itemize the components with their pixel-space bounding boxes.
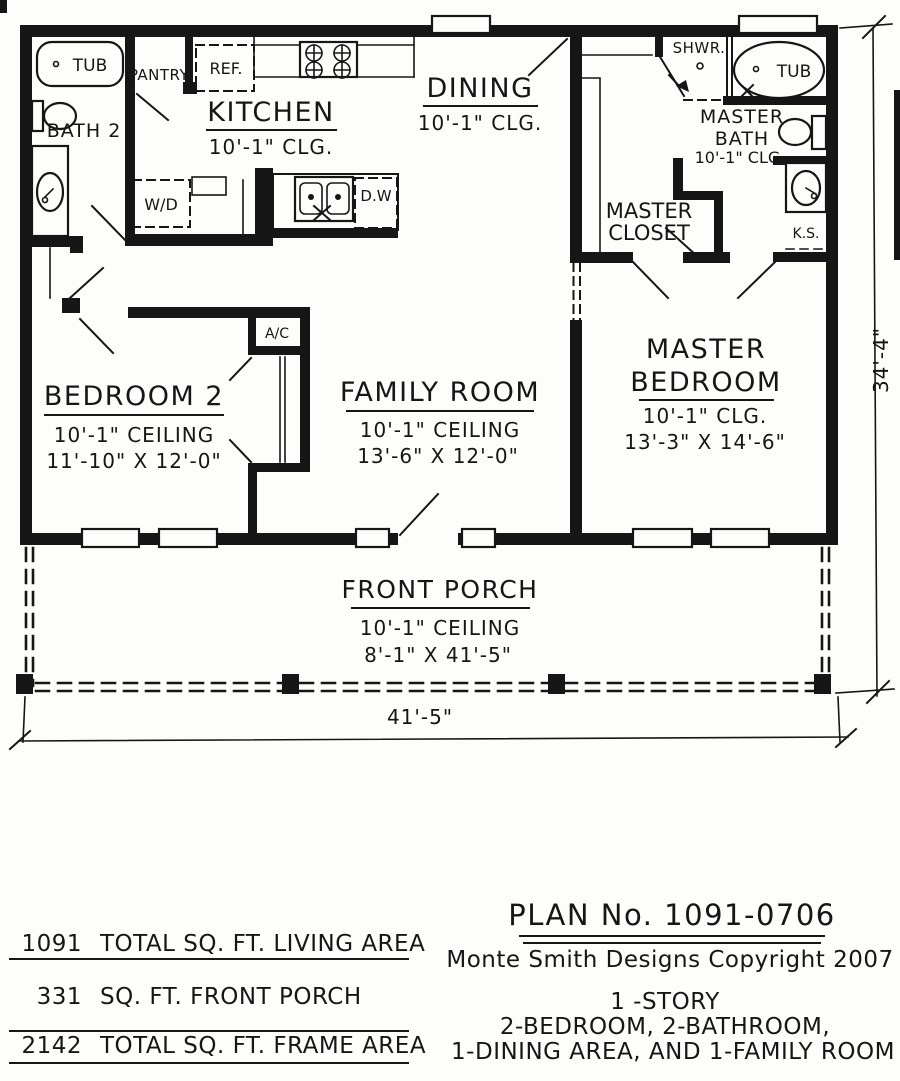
floor-plan-page: TUB BATH 2 PANTRY REF. bbox=[0, 0, 900, 1081]
dimension-depth: 34'-4" bbox=[836, 16, 894, 703]
window-master-bath bbox=[739, 16, 817, 33]
shower-label: SHWR. bbox=[673, 39, 726, 57]
svg-text:BATH: BATH bbox=[715, 128, 769, 150]
wall-top bbox=[20, 25, 838, 37]
dishwasher-icon: D.W bbox=[355, 178, 397, 228]
svg-text:BEDROOM: BEDROOM bbox=[630, 367, 781, 398]
master-sink-icon bbox=[786, 163, 826, 212]
porch-post bbox=[814, 674, 831, 694]
opening-dining bbox=[529, 39, 567, 75]
stat-value: 2142 bbox=[21, 1033, 82, 1059]
svg-text:FAMILY ROOM: FAMILY ROOM bbox=[340, 377, 540, 408]
svg-text:10'-1" CLG.: 10'-1" CLG. bbox=[643, 404, 767, 428]
family-room-label: FAMILY ROOM 10'-1" CEILING 13'-6" X 12'-… bbox=[340, 377, 540, 468]
svg-text:BEDROOM 2: BEDROOM 2 bbox=[44, 381, 224, 412]
svg-text:11'-10" X 12'-0": 11'-10" X 12'-0" bbox=[46, 449, 221, 473]
sqft-table: 1091 TOTAL SQ. FT. LIVING AREA 331 SQ. F… bbox=[10, 931, 426, 1063]
shower-drain-icon bbox=[697, 63, 703, 69]
master-closet-label: MASTER CLOSET bbox=[606, 199, 693, 245]
dishwasher-label: D.W bbox=[360, 187, 391, 205]
dining-label: DINING 10'-1" CLG. bbox=[418, 73, 542, 135]
sink-icon bbox=[32, 146, 68, 236]
front-door-opening bbox=[398, 531, 458, 547]
pantry-label: PANTRY bbox=[129, 66, 190, 84]
svg-text:FRONT PORCH: FRONT PORCH bbox=[342, 575, 539, 604]
ac-label: A/C bbox=[265, 326, 289, 342]
door-master-bath bbox=[738, 262, 775, 298]
svg-text:MASTER: MASTER bbox=[700, 106, 784, 128]
stat-label: TOTAL SQ. FT. LIVING AREA bbox=[99, 931, 425, 957]
porch-post bbox=[16, 674, 33, 694]
window-bedroom2-left bbox=[82, 529, 139, 547]
svg-text:10'-1" CLG.: 10'-1" CLG. bbox=[695, 148, 786, 167]
window-master-bedroom-right bbox=[711, 529, 769, 547]
window-dining bbox=[432, 16, 490, 33]
title-block: PLAN No. 1091-0706 Monte Smith Designs C… bbox=[446, 898, 895, 1065]
door-front bbox=[400, 494, 438, 535]
stat-value: 331 bbox=[37, 984, 82, 1010]
bath2-fixtures: TUB BATH 2 bbox=[32, 42, 123, 236]
svg-text:10'-1" CLG.: 10'-1" CLG. bbox=[418, 111, 542, 135]
door-bedroom2 bbox=[80, 319, 113, 353]
stat-value: 1091 bbox=[21, 931, 82, 957]
porch-post bbox=[282, 674, 299, 694]
overall-depth-label: 34'-4" bbox=[869, 327, 893, 393]
door-bath2 bbox=[92, 206, 125, 240]
svg-text:8'-1" X 41'-5": 8'-1" X 41'-5" bbox=[364, 643, 512, 667]
svg-text:MASTER: MASTER bbox=[606, 199, 693, 223]
plan-description-line: 1-DINING AREA, AND 1-FAMILY ROOM bbox=[451, 1039, 895, 1065]
master-toilet-icon bbox=[779, 116, 826, 149]
door-hall bbox=[70, 268, 103, 298]
washer-dryer-icon: W/D bbox=[133, 177, 257, 236]
master-tub-label: TUB bbox=[776, 62, 812, 82]
kitchen-sink-icon bbox=[295, 177, 353, 221]
master-bath-label: MASTER BATH 10'-1" CLG. bbox=[695, 106, 786, 167]
plan-description-line: 1 -STORY bbox=[610, 989, 720, 1015]
dimension-width: 41'-5" bbox=[10, 697, 856, 749]
svg-text:13'-3" X 14'-6": 13'-3" X 14'-6" bbox=[624, 430, 786, 454]
wall-left bbox=[20, 25, 32, 545]
svg-text:10'-1" CEILING: 10'-1" CEILING bbox=[360, 418, 520, 442]
plan-number: PLAN No. 1091-0706 bbox=[508, 898, 836, 932]
bath2-tub-label: TUB bbox=[72, 56, 108, 76]
svg-text:DINING: DINING bbox=[426, 73, 533, 104]
master-bedroom-label: MASTER BEDROOM 10'-1" CLG. 13'-3" X 14'-… bbox=[624, 334, 786, 454]
svg-text:13'-6" X 12'-0": 13'-6" X 12'-0" bbox=[357, 444, 519, 468]
door-master-closet bbox=[633, 262, 668, 298]
copyright: Monte Smith Designs Copyright 2007 bbox=[446, 947, 893, 973]
stat-label: TOTAL SQ. FT. FRAME AREA bbox=[99, 1033, 426, 1059]
bath2-label: BATH 2 bbox=[47, 120, 122, 142]
window-bedroom2-right bbox=[159, 529, 217, 547]
fridge-label: REF. bbox=[210, 59, 243, 78]
porch-post bbox=[548, 674, 565, 694]
door-pantry bbox=[137, 94, 168, 120]
front-porch-label: FRONT PORCH 10'-1" CEILING 8'-1" X 41'-5… bbox=[342, 575, 539, 667]
plan-description-line: 2-BEDROOM, 2-BATHROOM, bbox=[500, 1014, 830, 1040]
knee-space-label: K.S. bbox=[793, 226, 820, 242]
stove-icon bbox=[300, 42, 357, 78]
closet-shelf bbox=[582, 78, 600, 252]
kitchen-label: KITCHEN 10'-1" CLG. bbox=[207, 97, 336, 159]
bedroom2-label: BEDROOM 2 10'-1" CEILING 11'-10" X 12'-0… bbox=[44, 381, 224, 473]
svg-text:CLOSET: CLOSET bbox=[608, 221, 690, 245]
svg-text:10'-1" CEILING: 10'-1" CEILING bbox=[54, 423, 214, 447]
window-family-left bbox=[356, 529, 389, 547]
window-master-bedroom-left bbox=[633, 529, 692, 547]
wall-right bbox=[826, 25, 838, 545]
stat-label: SQ. FT. FRONT PORCH bbox=[100, 984, 362, 1010]
window-family-right bbox=[462, 529, 495, 547]
floorplan-svg: TUB BATH 2 PANTRY REF. bbox=[0, 0, 900, 1081]
washer-dryer-label: W/D bbox=[144, 195, 178, 214]
svg-text:10'-1" CLG.: 10'-1" CLG. bbox=[209, 135, 333, 159]
svg-text:MASTER: MASTER bbox=[646, 334, 766, 365]
svg-text:10'-1" CEILING: 10'-1" CEILING bbox=[360, 616, 520, 640]
overall-width-label: 41'-5" bbox=[387, 705, 453, 729]
svg-text:KITCHEN: KITCHEN bbox=[207, 97, 335, 128]
